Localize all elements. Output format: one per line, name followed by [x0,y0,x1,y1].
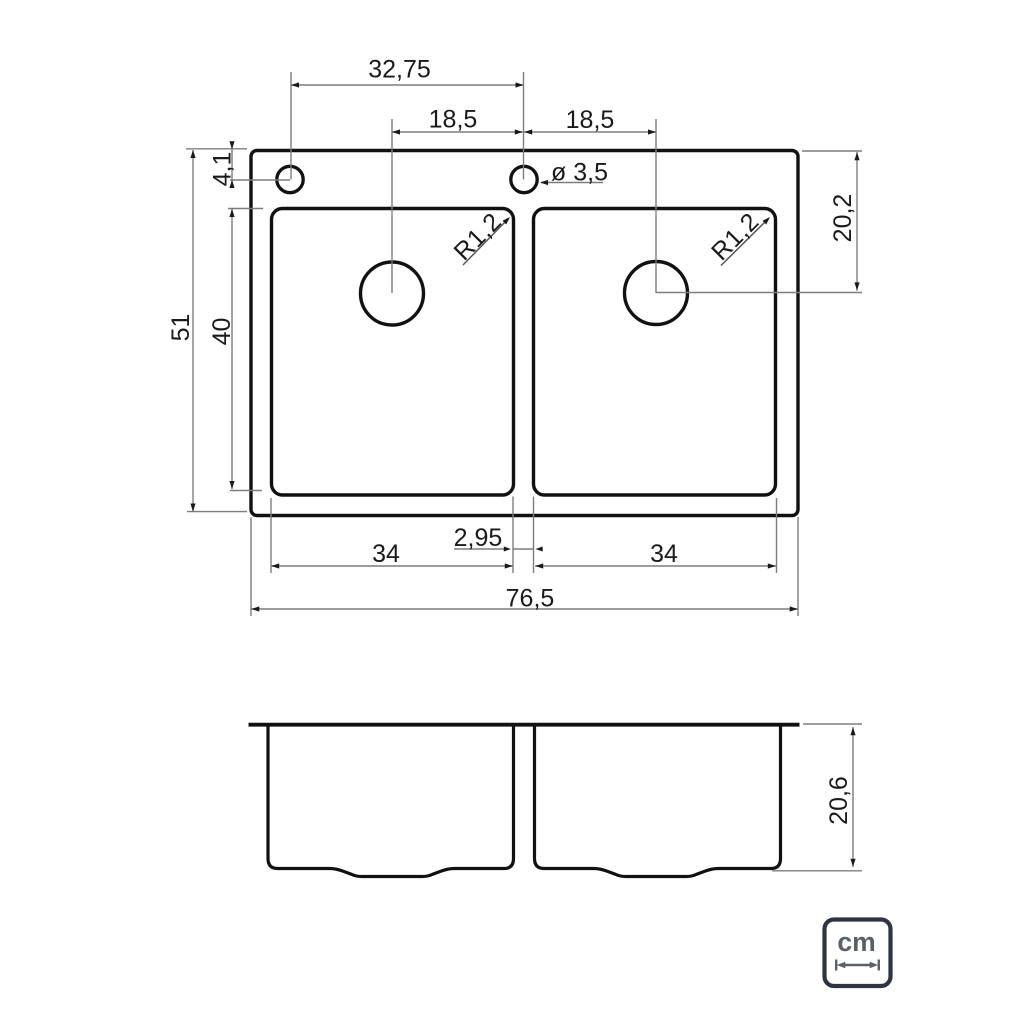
svg-text:cm: cm [837,927,875,957]
svg-text:ø 3,5: ø 3,5 [551,159,608,187]
svg-text:32,75: 32,75 [368,56,431,84]
svg-text:34: 34 [650,540,678,568]
svg-text:34: 34 [372,540,400,568]
svg-text:18,5: 18,5 [429,106,478,134]
svg-text:76,5: 76,5 [506,585,555,613]
svg-text:20,2: 20,2 [829,194,857,243]
svg-text:51: 51 [167,314,195,342]
svg-text:4,1: 4,1 [209,152,237,187]
svg-text:20,6: 20,6 [825,776,853,825]
svg-text:2,95: 2,95 [454,524,503,552]
svg-text:40: 40 [208,318,236,346]
svg-text:18,5: 18,5 [566,106,615,134]
